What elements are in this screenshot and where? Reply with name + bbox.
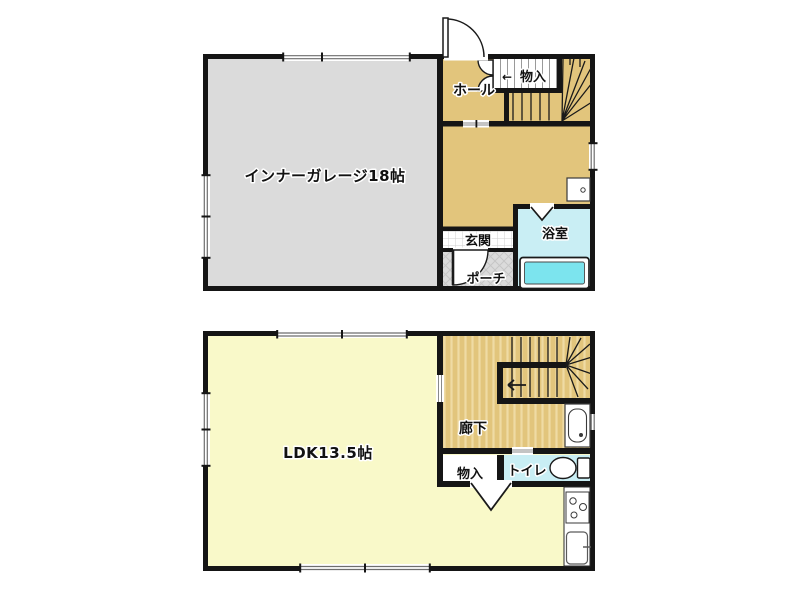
window-1f-left: [202, 174, 211, 259]
toilet-doorway: [512, 447, 533, 455]
washbasin-2f-icon: [565, 404, 590, 447]
window-2f-bottom: [299, 564, 431, 573]
floorplan-canvas: インナーガレージ18帖 ホール ← 物入 玄関 ポーチ 浴室: [0, 0, 800, 600]
storage-label-1f: 物入: [520, 69, 546, 85]
toilet-fixture-icon: [550, 458, 590, 479]
hall-label: ホール: [453, 83, 495, 99]
entrance-door-swing-icon: [443, 18, 488, 61]
entrance-label: 玄関: [465, 233, 491, 249]
kitchen-sink-icon: [567, 532, 592, 564]
garage-label: インナーガレージ18帖: [244, 167, 405, 185]
floorplan-image: インナーガレージ18帖 ホール ← 物入 玄関 ポーチ 浴室: [0, 0, 800, 600]
corridor-label: 廊下: [459, 420, 487, 437]
kitchen-counter: [564, 487, 591, 566]
porch-label: ポーチ: [466, 271, 505, 287]
stove-icon: [566, 492, 589, 523]
bathroom-label: 浴室: [542, 226, 568, 242]
floor-plan-1f: インナーガレージ18帖 ホール ← 物入 玄関 ポーチ 浴室: [202, 18, 598, 289]
ldk-corridor-doorway: [436, 375, 444, 402]
window-2f-left: [202, 392, 211, 467]
window-1f-top: [282, 53, 411, 62]
window-1f-right: [589, 142, 598, 171]
washbasin-1f-icon: [567, 178, 590, 201]
storage-arrow-1f: ←: [502, 70, 512, 84]
floor-plan-2f: LDK13.5帖 廊下 物入 トイレ: [202, 330, 598, 573]
ldk-label: LDK13.5帖: [283, 444, 373, 462]
hall-doorway: [463, 120, 489, 128]
bathtub-icon: [520, 258, 589, 289]
window-2f-top: [276, 330, 408, 339]
storage-label-2f: 物入: [457, 466, 483, 482]
toilet-label: トイレ: [507, 464, 546, 479]
